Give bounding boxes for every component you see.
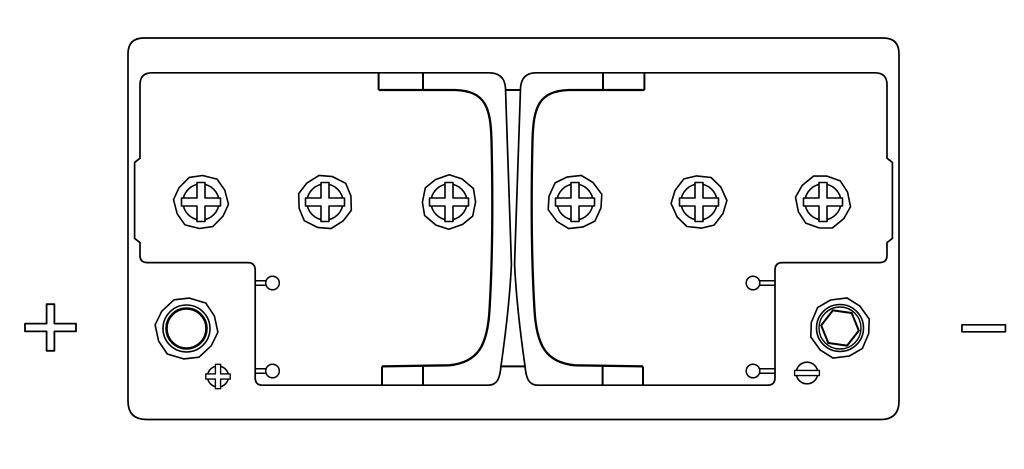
battery-technical-drawing: [0, 0, 1024, 469]
vent-cap: [548, 175, 602, 228]
positive-symbol: [25, 304, 76, 351]
vent-cap: [671, 176, 727, 228]
positive-marker-screw: [206, 364, 230, 388]
vent-cap: [174, 176, 229, 229]
vent-cap: [796, 176, 851, 228]
terminal-pin: [255, 276, 279, 290]
terminal-pin: [255, 364, 279, 378]
center-seal-curve-right: [532, 90, 645, 366]
negative-marker-screw: [795, 362, 820, 384]
positive-terminal: [155, 298, 218, 359]
vent-cap: [422, 175, 475, 230]
drawing-canvas: [0, 0, 1024, 469]
negative-symbol: [962, 325, 1006, 332]
terminal-pin: [746, 364, 775, 378]
battery-case-outline: [128, 38, 899, 420]
terminal-pin: [746, 276, 775, 290]
cover-panel-left: [135, 73, 512, 385]
vent-cap: [299, 175, 352, 228]
negative-terminal: [811, 298, 869, 358]
center-seal-curve-left: [379, 90, 493, 366]
